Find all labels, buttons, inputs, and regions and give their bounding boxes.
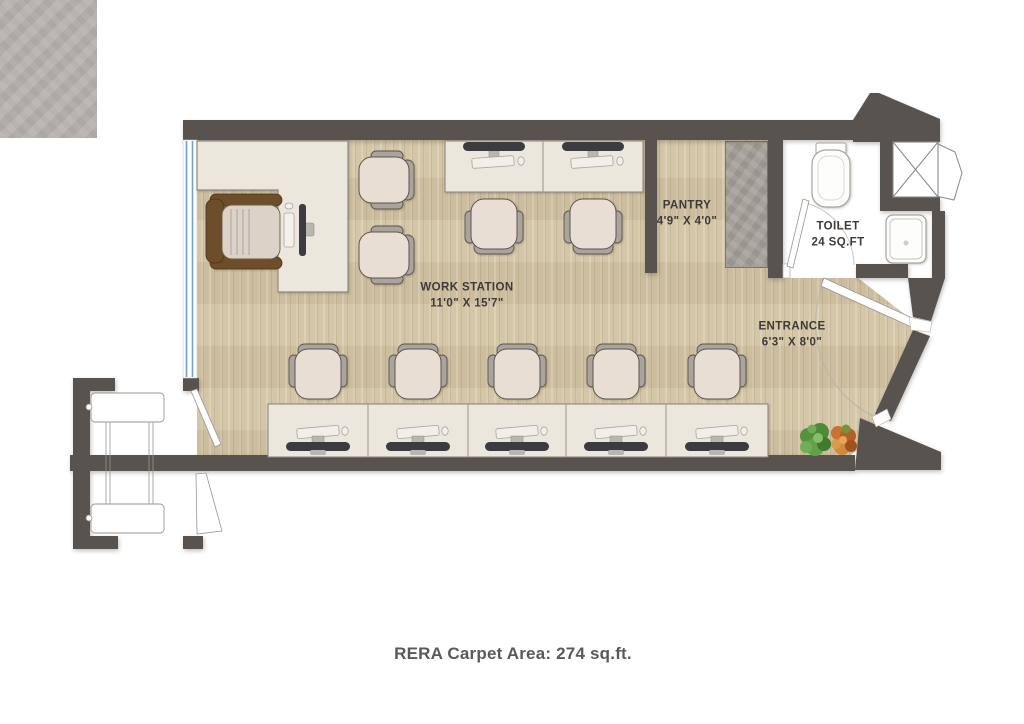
room-size: 24 SQ.FT [811,235,864,251]
plant-orange [831,425,857,456]
executive-corner [197,141,348,292]
monitor [584,442,648,451]
monitor-base [410,450,426,455]
room-label-toilet: TOILET 24 SQ.FT [811,219,864,250]
washbasin-drain [904,241,909,246]
entrance-door-jamb-bottom [872,409,891,427]
monitor-base [310,450,326,455]
mouse [285,203,293,209]
shaft-ledge [936,143,962,200]
bench-knob [86,515,92,521]
monitor [685,442,749,451]
toilet-bottom-wall [856,264,908,278]
plant-green [800,423,831,456]
keyboard [284,213,294,247]
room-label-work-station: WORK STATION 11'0" X 15'7" [420,280,513,311]
monitor [562,142,624,151]
outer-door-leaf [196,473,222,534]
mouse [442,427,448,435]
office-chair [465,199,523,254]
room-label-entrance: ENTRANCE 6'3" X 8'0" [758,319,825,350]
toilet-door-leaf [787,199,809,268]
guest-chair [359,151,414,209]
guest-chair [359,226,414,284]
lobby-bottom-arm [73,536,118,549]
bench-knob [86,404,92,410]
lobby-bench-bottom [91,504,164,533]
top-workstations [445,141,643,192]
caption: RERA Carpet Area: 274 sq.ft. [394,644,632,664]
office-chair [688,344,746,399]
office-chair [587,344,645,399]
bottom-workstations [268,404,768,457]
mouse [617,157,623,165]
top-wall [183,120,853,140]
plants [800,423,857,456]
monitor [299,204,306,256]
room-size: 6'3" X 8'0" [758,335,825,351]
office-chair [564,199,622,254]
monitor-base [509,450,525,455]
office-chair [389,344,447,399]
bottom-right-angled-wall [855,418,941,470]
lobby-west-wall [73,378,90,549]
monitor [485,442,549,451]
office-chair [289,344,347,399]
duct-shaft [893,142,962,200]
shaft-bottom-wall [880,197,940,211]
lobby-top-arm [73,378,115,391]
corner-wall [908,278,945,321]
room-size: 11'0" X 15'7" [420,296,513,312]
executive-chair [206,194,282,269]
outer-door-stub [183,536,203,549]
entrance-angled-wall [875,330,930,421]
room-name: PANTRY [657,198,717,214]
basin-right-wall [932,211,945,278]
mouse [741,427,747,435]
monitor-stand [305,223,314,236]
plan-drawing [0,0,1024,724]
room-name: TOILET [811,219,864,235]
room-size: 4'9" X 4'0" [657,214,717,230]
monitor [286,442,350,451]
entrance-door-leaf [821,278,921,330]
pantry-toilet-wall [768,140,783,278]
room-name: ENTRANCE [758,319,825,335]
monitor [386,442,450,451]
floor-plan: WORK STATION 11'0" X 15'7" PANTRY 4'9" X… [0,0,1024,724]
office-chair [488,344,546,399]
mouse [541,427,547,435]
mouse [342,427,348,435]
top-right-angled-wall [853,93,940,142]
pantry-left-wall [645,140,657,273]
mouse [518,157,524,165]
monitor-base [709,450,725,455]
lobby-bench-top [91,393,164,422]
room-name: WORK STATION [420,280,513,296]
room-label-pantry: PANTRY 4'9" X 4'0" [657,198,717,229]
window [183,140,197,378]
monitor-base [608,450,624,455]
mouse [640,427,646,435]
washbasin [886,215,926,263]
monitor [463,142,525,151]
side-door-leaf [191,389,221,447]
